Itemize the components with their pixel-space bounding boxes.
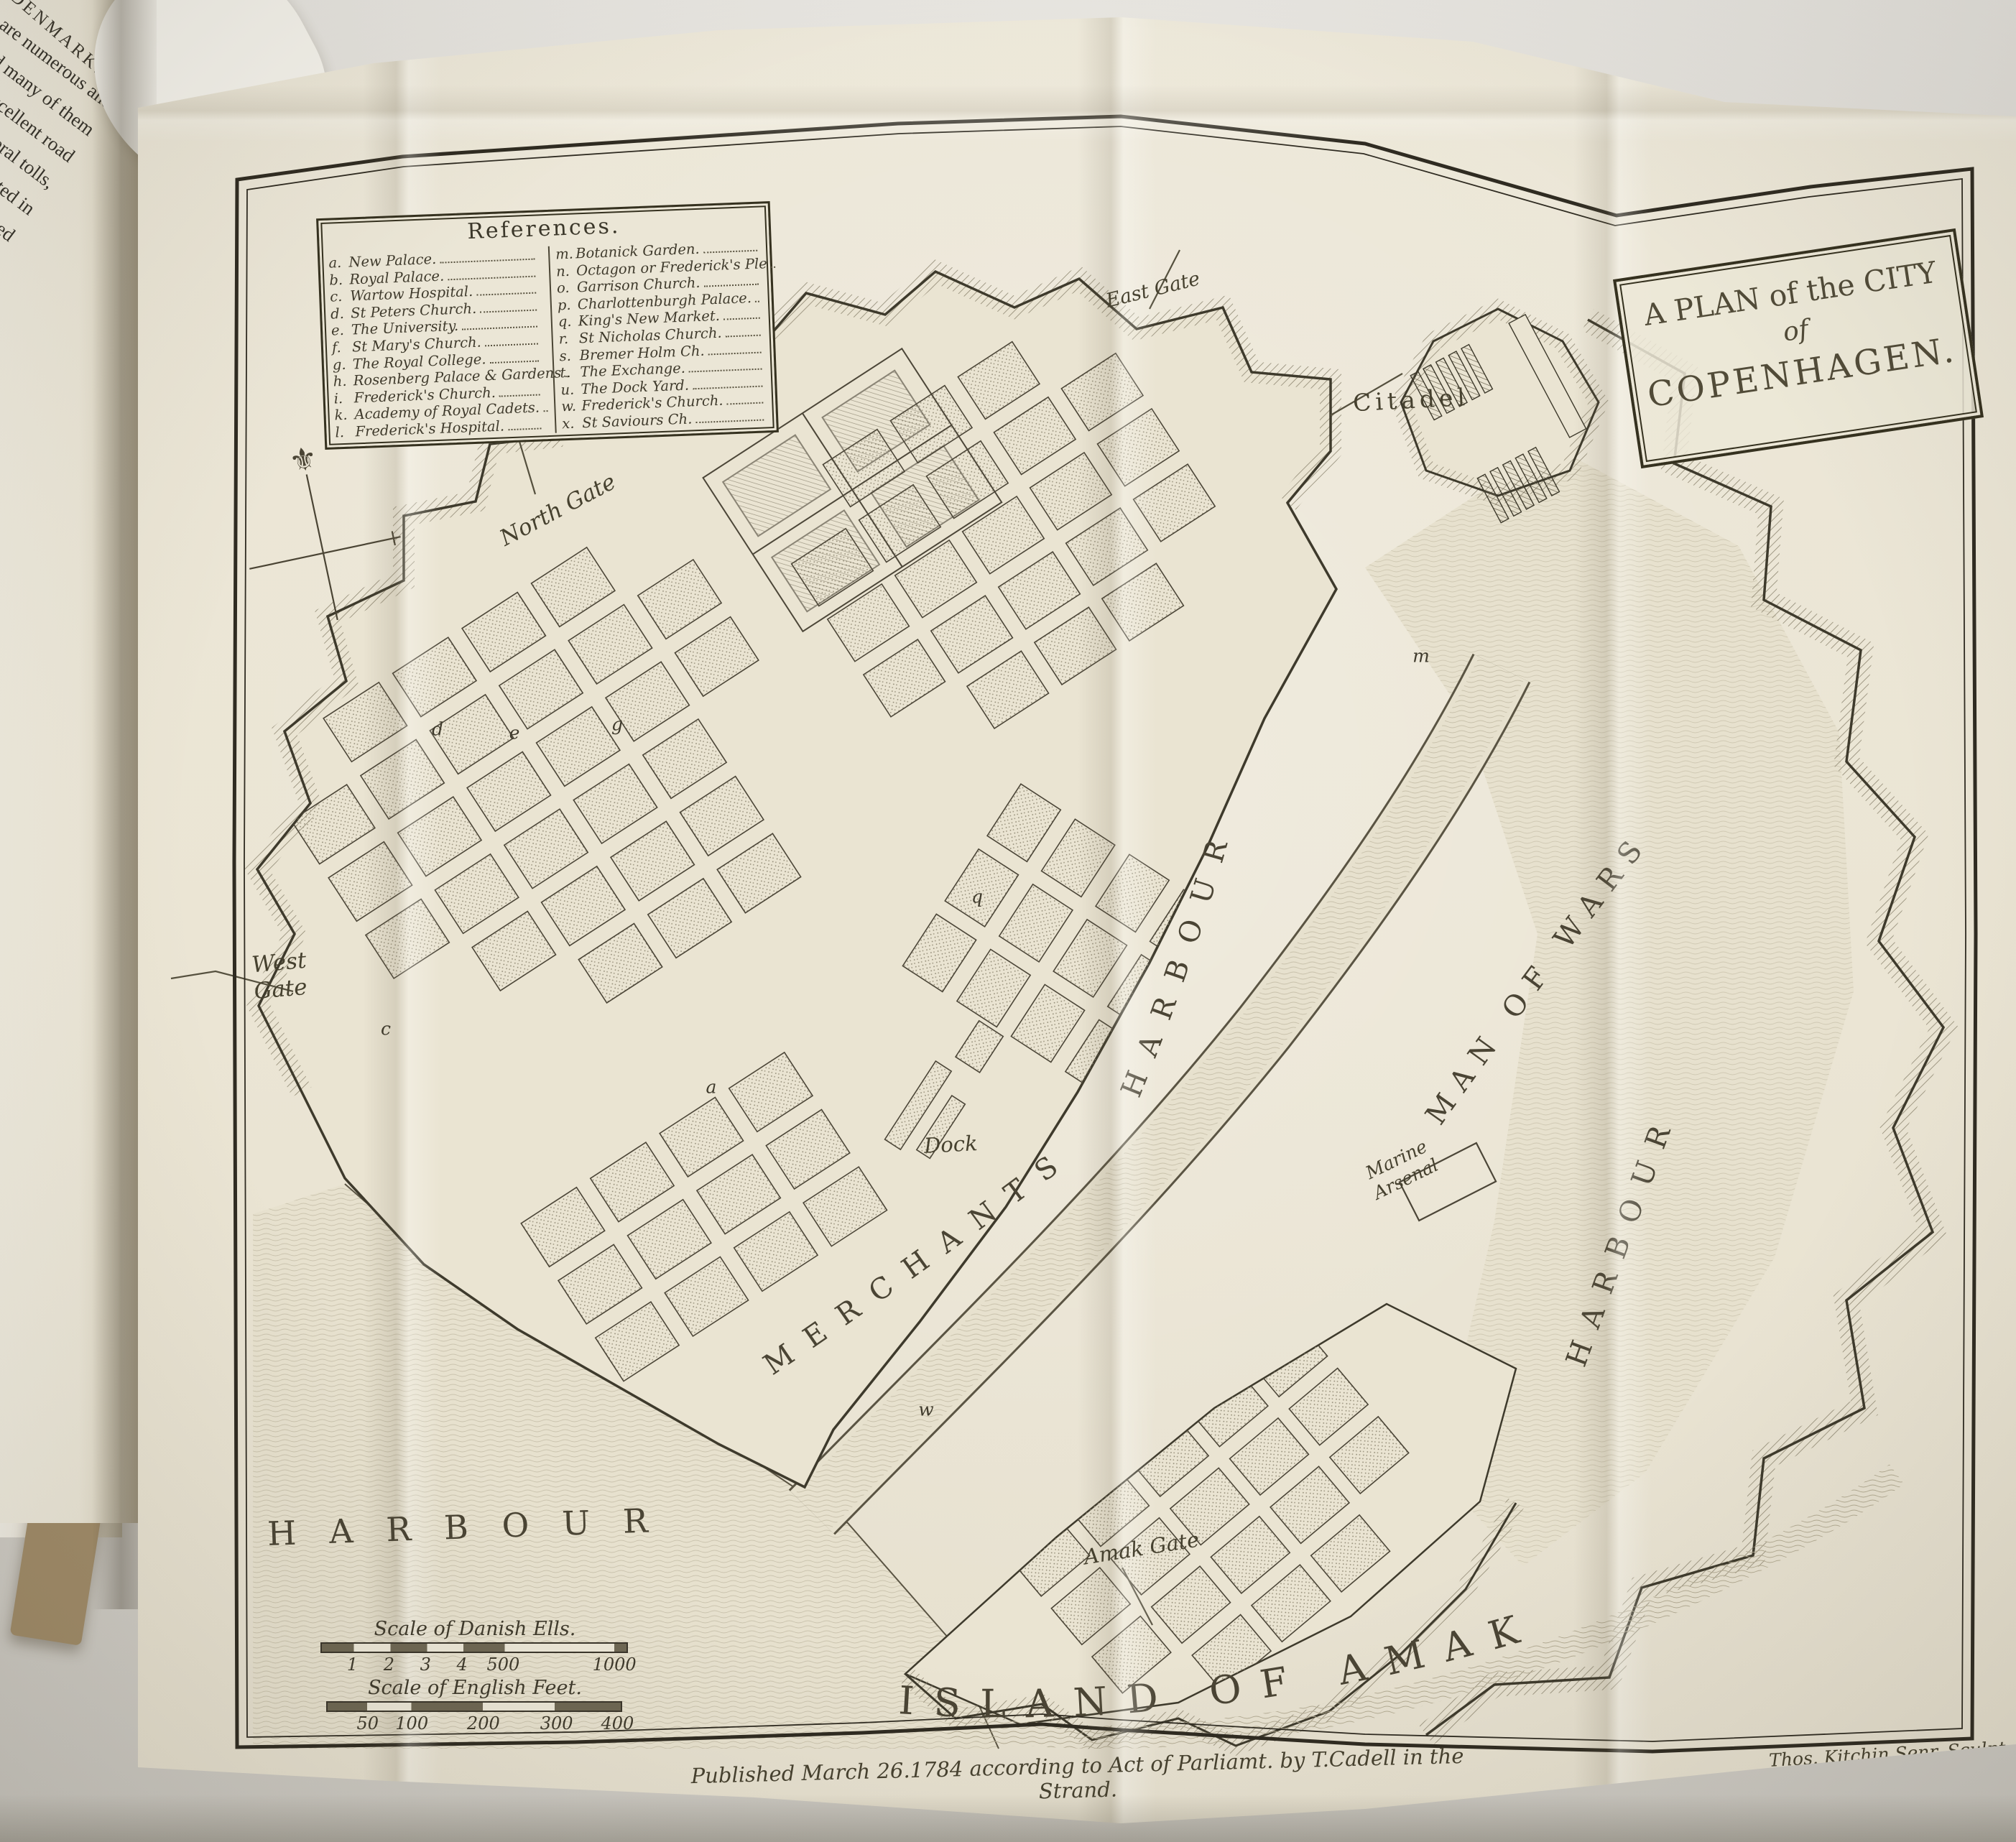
reference-key: o. bbox=[557, 279, 578, 297]
reference-key: e. bbox=[331, 322, 352, 339]
compass-north-fleur-icon: ⚜ bbox=[286, 439, 321, 481]
reference-leader-line bbox=[695, 419, 764, 423]
map-letter-key: d bbox=[432, 719, 443, 740]
references-column-left: a. New Palace. b. Royal Palace. c. Warto… bbox=[328, 247, 544, 442]
reference-leader-line bbox=[448, 275, 535, 280]
reference-leader-line bbox=[440, 259, 535, 264]
references-column-right: m. Botanick Garden. n. Octagon or Freder… bbox=[548, 239, 767, 433]
reference-leader-line bbox=[723, 318, 760, 320]
reference-leader-line bbox=[703, 250, 757, 254]
reference-leader-line bbox=[490, 360, 539, 364]
reference-key: h. bbox=[333, 373, 353, 390]
reference-leader-line bbox=[480, 309, 537, 313]
reference-key: i. bbox=[333, 389, 354, 407]
reference-leader-line bbox=[543, 410, 547, 412]
reference-leader-line bbox=[462, 326, 537, 330]
reference-key: s. bbox=[559, 347, 580, 364]
reference-key: l. bbox=[335, 423, 356, 440]
map-letter-key: q bbox=[971, 887, 983, 907]
dock-label: Dock bbox=[923, 1131, 978, 1158]
reference-key: n. bbox=[556, 262, 577, 279]
book-bottom-shadow bbox=[0, 1795, 2016, 1842]
scale-tick: 3 bbox=[420, 1654, 431, 1675]
reference-key: p. bbox=[557, 296, 578, 313]
reference-leader-line bbox=[726, 335, 761, 338]
scale-tick: 2 bbox=[384, 1654, 394, 1675]
reference-key: u. bbox=[560, 381, 581, 398]
reference-key: q. bbox=[558, 313, 578, 330]
map-letter-key: c bbox=[381, 1019, 391, 1040]
reference-leader-line bbox=[476, 292, 536, 296]
reference-key: g. bbox=[332, 356, 353, 373]
reference-key: w. bbox=[561, 398, 582, 415]
reference-leader-line bbox=[485, 343, 538, 346]
danish-scale-ticks: 12345001000 bbox=[320, 1653, 625, 1677]
reference-leader-line bbox=[499, 394, 540, 397]
danish-scale-bar bbox=[320, 1642, 628, 1653]
map-plate: ⚜ MERCHANTS HARBOUR MAN OF WARS HARBOUR … bbox=[0, 0, 2016, 1842]
danish-scale-title: Scale of Danish Ells. bbox=[315, 1618, 635, 1640]
west-gate-label: West Gate bbox=[251, 948, 310, 1006]
reference-key: d. bbox=[330, 305, 351, 322]
map-letter-key: m bbox=[1412, 646, 1430, 667]
reference-key: c. bbox=[330, 288, 351, 305]
reference-leader-line bbox=[508, 427, 541, 430]
scale-tick: 50 bbox=[356, 1713, 379, 1734]
reference-key: b. bbox=[329, 271, 350, 288]
english-scale-bar bbox=[326, 1701, 622, 1712]
reference-key: m. bbox=[555, 245, 576, 262]
reference-leader-line bbox=[708, 351, 762, 355]
scale-tick: 1000 bbox=[593, 1654, 637, 1675]
scale-tick: 100 bbox=[395, 1713, 428, 1734]
reference-key: x. bbox=[562, 415, 583, 432]
english-scale-ticks: 50100200300400 bbox=[320, 1712, 625, 1736]
reference-key: r. bbox=[558, 330, 579, 347]
map-letter-key: a bbox=[706, 1077, 717, 1098]
reference-leader-line bbox=[755, 300, 759, 302]
map-letter-key: w bbox=[918, 1399, 933, 1420]
scale-tick: 400 bbox=[601, 1713, 634, 1734]
scale-tick: 500 bbox=[486, 1654, 519, 1675]
reference-key: a. bbox=[328, 254, 349, 272]
reference-key: k. bbox=[334, 407, 355, 424]
scale-tick: 200 bbox=[467, 1713, 500, 1734]
scale-tick: 4 bbox=[457, 1654, 468, 1675]
reference-key: t. bbox=[560, 364, 581, 381]
map-letter-key: e bbox=[509, 723, 520, 744]
reference-leader-line bbox=[727, 402, 764, 405]
scale-bars: Scale of Danish Ells. 12345001000 Scale … bbox=[315, 1618, 635, 1736]
english-scale-title: Scale of English Feet. bbox=[315, 1677, 635, 1699]
reference-label: St Saviours Ch. bbox=[582, 410, 693, 431]
reference-leader-line bbox=[689, 369, 762, 373]
reference-key: f. bbox=[332, 338, 353, 356]
scale-tick: 300 bbox=[540, 1713, 573, 1734]
reference-leader-line bbox=[693, 385, 762, 389]
reference-leader-line bbox=[704, 284, 759, 287]
map-letter-key: g bbox=[611, 714, 623, 735]
photo-scene: DENMARK. B. 9. are numerous andd many of… bbox=[0, 0, 2016, 1842]
references-legend: References. a. New Palace. b. Royal Pala… bbox=[316, 201, 779, 450]
scale-tick: 1 bbox=[347, 1654, 358, 1675]
reference-leader-line bbox=[771, 266, 775, 267]
